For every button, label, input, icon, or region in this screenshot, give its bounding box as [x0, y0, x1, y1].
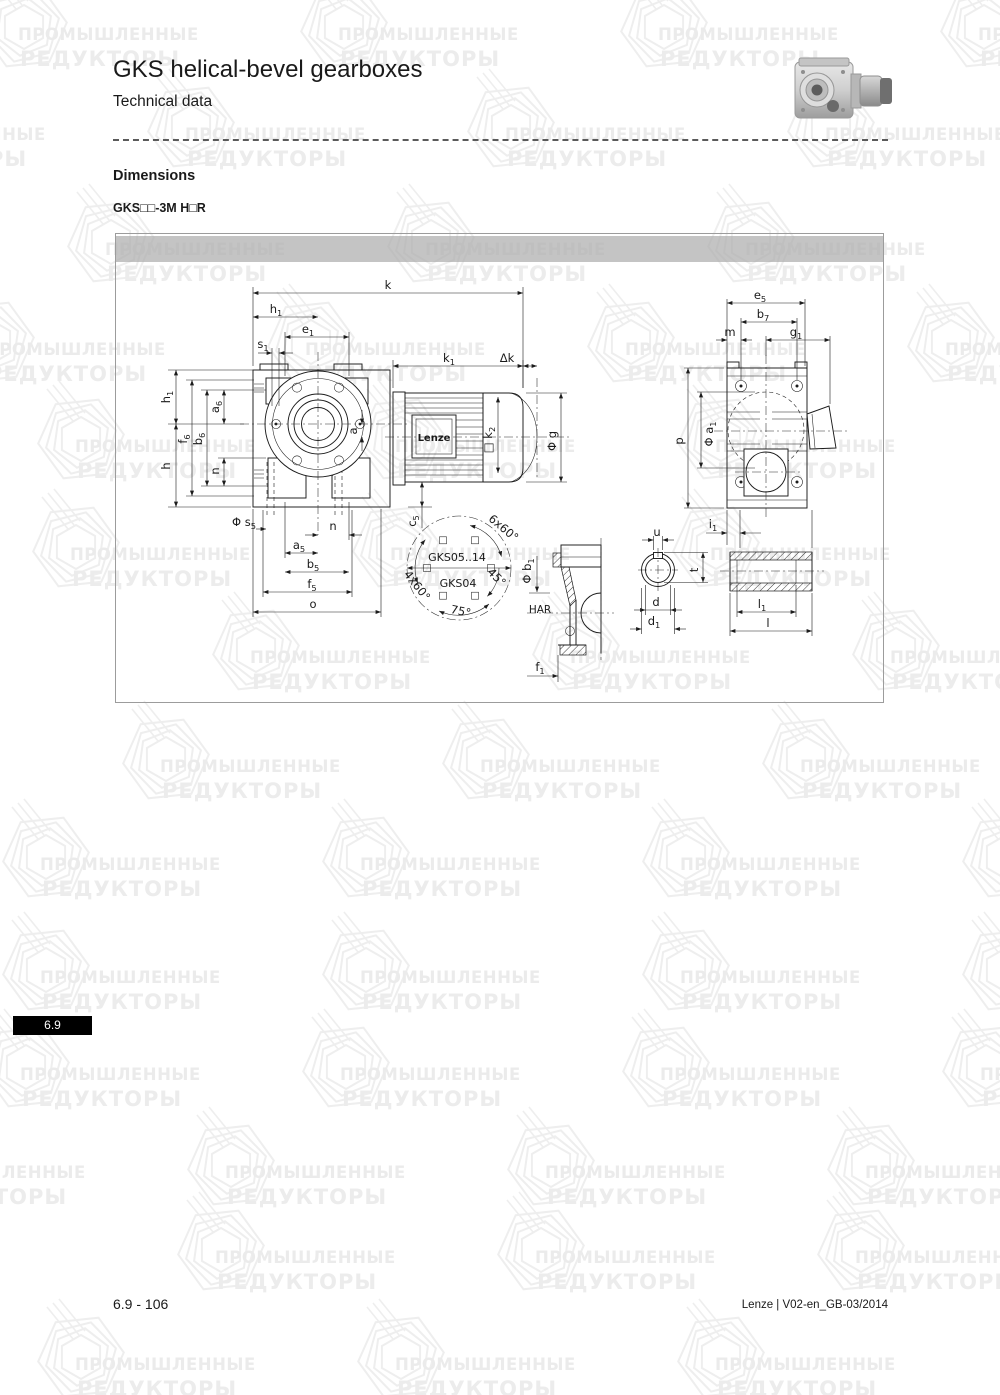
hollow-shaft-section-view: [720, 552, 824, 591]
dim-label: Φ g: [545, 431, 559, 451]
dim-label: u: [653, 525, 660, 539]
footer-page-number: 6.9 - 106: [113, 1296, 168, 1312]
dim-label: a: [346, 427, 360, 434]
dim-label: 45°: [485, 565, 509, 589]
footer-doc-reference: Lenze | V02-en_GB-03/2014: [742, 1299, 888, 1311]
dim-label: 4x60°: [401, 568, 433, 604]
catalog-page: ПРОМЫШЛЕННЫЕРЕДУКТОРЫПРОМЫШЛЕННЫЕРЕДУКТО…: [0, 0, 1000, 1395]
dim-label: e1: [302, 322, 314, 338]
dim-label: d1: [648, 614, 661, 630]
release-lever: [807, 406, 836, 449]
dim-label: k: [385, 278, 392, 292]
dim-label: Φ a1: [702, 421, 718, 446]
dim-label: a6: [208, 401, 224, 413]
dim-label: f6: [176, 434, 192, 443]
dim-label: b5: [307, 557, 320, 573]
dim-label: k1: [443, 351, 455, 367]
dim-label: s1: [257, 337, 268, 353]
dim-label: Φ s5: [232, 515, 256, 531]
dim-label: Δk: [500, 351, 515, 365]
dim-label: n: [208, 467, 222, 474]
dim-label: GKS05..14: [428, 551, 486, 564]
dim-label: a5: [293, 538, 305, 554]
dim-label: m: [724, 325, 735, 339]
motor-side-view: [385, 378, 570, 485]
dim-label: f5: [307, 577, 316, 593]
drawing-header-bar: [116, 236, 883, 262]
dim-label: l: [766, 616, 769, 630]
dim-label: i1: [709, 517, 717, 533]
dim-label: d: [652, 595, 659, 609]
dim-label: 75°: [449, 602, 472, 620]
dim-label: p: [672, 437, 686, 444]
dimension-drawing: kh1e1s1h1f6b6a6hnaΦ s5na5b5f5ok1Δk□ k2Φ …: [0, 0, 1000, 1395]
dim-label: GKS04: [440, 577, 477, 590]
dim-label: h1: [270, 302, 283, 318]
rear-view: [714, 355, 850, 520]
dim-label: Φ b1: [520, 558, 536, 583]
dim-label: Lenze: [418, 433, 451, 444]
dim-label: c5: [405, 515, 421, 527]
dimension-labels: kh1e1s1h1f6b6a6hnaΦ s5na5b5f5ok1Δk□ k2Φ …: [159, 278, 802, 676]
chapter-tab: 6.9: [13, 1016, 92, 1035]
dim-label: h1: [159, 391, 175, 404]
dim-label: 6x60°: [486, 511, 521, 544]
dim-label: e5: [754, 288, 766, 304]
dim-label: l1: [758, 597, 766, 613]
dim-label: HAR: [529, 604, 551, 616]
dim-label: h: [159, 462, 173, 469]
hollow-shaft-end-view: [638, 548, 678, 592]
dim-label: b6: [191, 433, 207, 446]
dim-label: o: [309, 597, 316, 611]
har-section-view: [527, 538, 614, 660]
dim-label: f1: [535, 660, 544, 676]
dim-label: n: [329, 519, 336, 533]
front-view: [240, 348, 408, 535]
dim-label: g1: [790, 325, 803, 341]
dim-label: b7: [757, 307, 770, 323]
dim-label: t: [687, 567, 701, 572]
